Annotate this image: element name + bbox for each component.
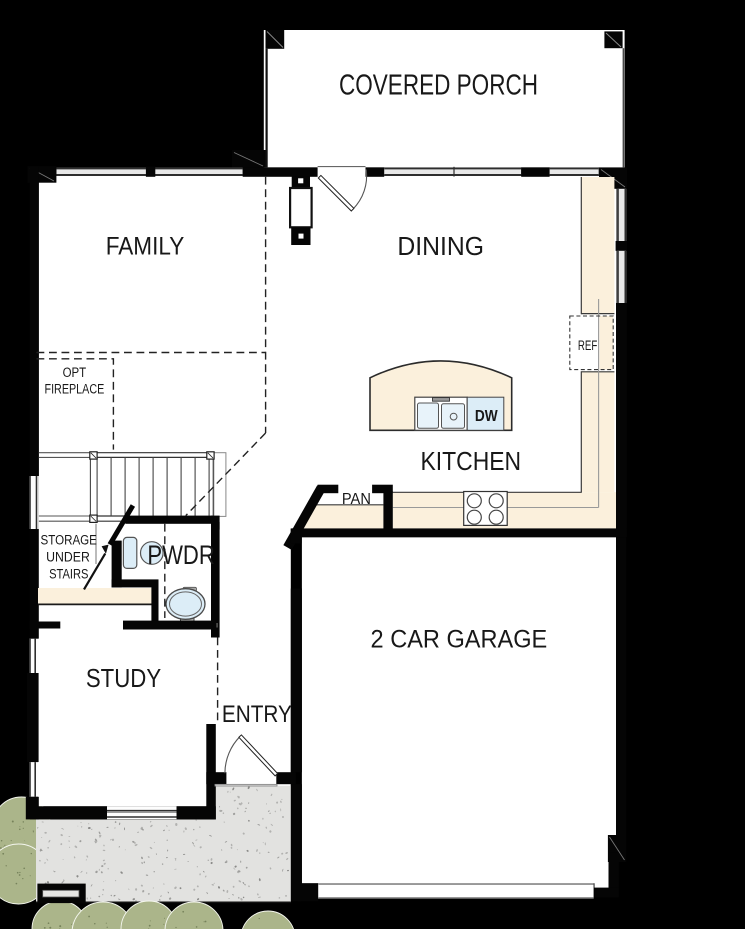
svg-text:REF: REF [578, 338, 597, 353]
svg-text:2 CAR GARAGE: 2 CAR GARAGE [371, 625, 548, 653]
svg-text:UNDER: UNDER [46, 549, 90, 564]
svg-text:DINING: DINING [397, 233, 484, 261]
svg-text:FAMILY: FAMILY [106, 233, 185, 261]
svg-text:STORAGE: STORAGE [41, 533, 97, 548]
svg-text:COVERED PORCH: COVERED PORCH [339, 69, 538, 101]
svg-text:DW: DW [475, 408, 498, 425]
svg-text:FIREPLACE: FIREPLACE [45, 381, 105, 396]
svg-text:KITCHEN: KITCHEN [421, 448, 522, 476]
svg-text:PAN: PAN [342, 491, 371, 508]
svg-text:PWDR: PWDR [147, 540, 214, 570]
svg-text:OPT: OPT [63, 365, 87, 380]
svg-text:STUDY: STUDY [86, 663, 161, 693]
svg-text:ENTRY: ENTRY [222, 701, 292, 728]
svg-text:STAIRS: STAIRS [49, 566, 88, 581]
